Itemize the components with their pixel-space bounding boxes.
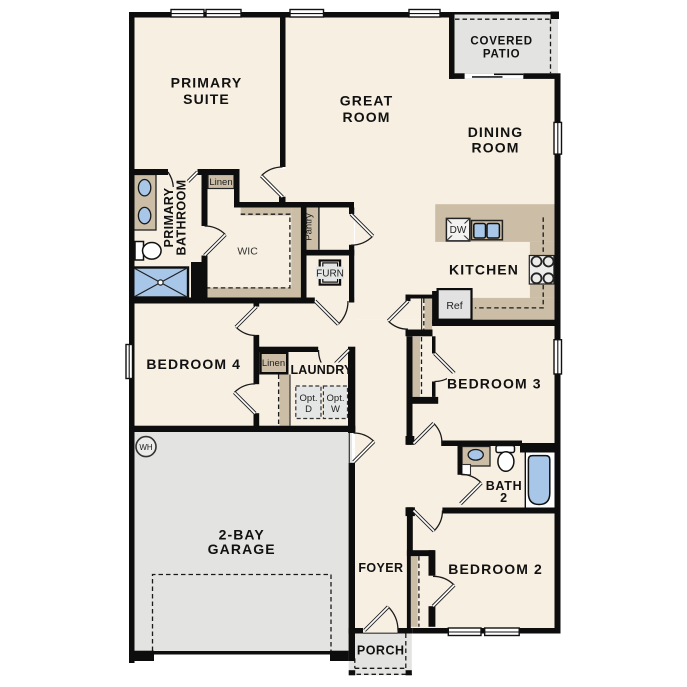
svg-text:BEDROOM 2: BEDROOM 2 bbox=[448, 561, 543, 577]
svg-text:WIC: WIC bbox=[237, 246, 258, 258]
svg-text:BEDROOM 3: BEDROOM 3 bbox=[447, 376, 542, 392]
svg-text:DW: DW bbox=[450, 225, 467, 236]
svg-text:KITCHEN: KITCHEN bbox=[449, 262, 519, 278]
svg-text:LAUNDRY: LAUNDRY bbox=[290, 363, 353, 377]
svg-text:FURN: FURN bbox=[316, 269, 344, 280]
svg-text:ROOM: ROOM bbox=[343, 109, 391, 125]
svg-text:COVERED: COVERED bbox=[470, 36, 532, 48]
svg-text:Pantry: Pantry bbox=[304, 213, 315, 241]
svg-text:W: W bbox=[331, 404, 340, 415]
svg-text:PORCH: PORCH bbox=[357, 644, 405, 658]
svg-text:PATIO: PATIO bbox=[483, 48, 520, 60]
svg-text:DINING: DINING bbox=[468, 124, 524, 140]
svg-text:Ref: Ref bbox=[446, 300, 462, 312]
svg-text:GREAT: GREAT bbox=[340, 93, 393, 109]
svg-text:ROOM: ROOM bbox=[472, 140, 520, 156]
svg-text:Linen: Linen bbox=[262, 358, 285, 369]
svg-text:D: D bbox=[305, 404, 312, 415]
svg-text:PRIMARY: PRIMARY bbox=[171, 75, 243, 91]
svg-text:WH: WH bbox=[139, 443, 153, 452]
svg-text:Linen: Linen bbox=[209, 177, 232, 188]
svg-text:BEDROOM 4: BEDROOM 4 bbox=[146, 356, 241, 372]
svg-text:FOYER: FOYER bbox=[358, 561, 403, 575]
svg-text:2: 2 bbox=[500, 491, 508, 505]
svg-text:Opt.: Opt. bbox=[300, 393, 318, 404]
svg-text:Opt.: Opt. bbox=[327, 393, 345, 404]
svg-text:SUITE: SUITE bbox=[183, 91, 230, 107]
svg-text:BATHROOM: BATHROOM bbox=[174, 180, 188, 256]
svg-text:GARAGE: GARAGE bbox=[208, 541, 276, 557]
